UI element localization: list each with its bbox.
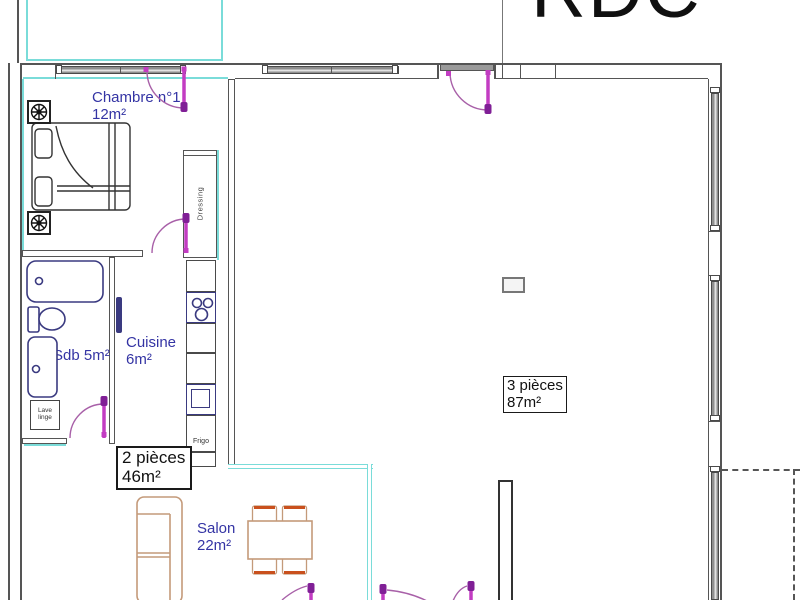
door-strike [144,67,149,72]
door-handle [468,581,475,591]
dining-table [248,521,312,559]
door-handle [101,396,108,406]
plan-overlay [0,0,800,600]
bed [32,123,130,210]
door-arc-3pieces-entry [450,73,488,110]
door-hinge [102,432,107,437]
toilet-tank [28,307,39,332]
door-arc-hall-3 [453,586,467,600]
door-handle [380,584,387,594]
door-arc-hall-2 [387,590,427,600]
door-hinge [486,70,491,75]
sink-drain [33,366,40,373]
door-arc-hall-1 [282,586,307,600]
door-handle [485,104,492,114]
door-arc-sdb [70,404,104,438]
bathtub-drain [36,278,43,285]
hob-icon [193,299,213,321]
door-hinge [182,67,187,72]
door-arc-chambre-terrace [147,71,184,108]
sofa [137,497,182,600]
toilet-bowl [39,308,65,330]
floor-plan-canvas: RDC [0,0,800,600]
door-strike [446,71,451,76]
door-handle [181,102,188,112]
door-handle [308,583,315,593]
door-arc-chambre [152,219,186,253]
door-hinge [184,248,189,253]
door-handle [183,213,190,223]
